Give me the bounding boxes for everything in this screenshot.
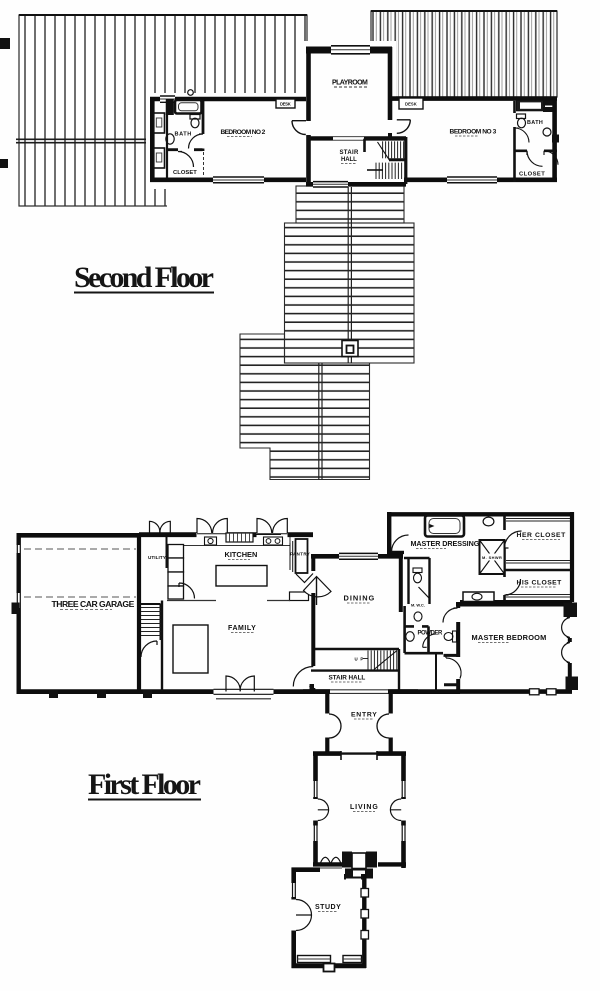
- svg-text:DESK: DESK: [405, 102, 417, 107]
- svg-text:STAIR: STAIR: [340, 150, 359, 156]
- svg-text:BATH: BATH: [527, 120, 543, 126]
- svg-text:ENTRY: ENTRY: [351, 712, 377, 719]
- svg-text:UTILITY: UTILITY: [148, 555, 166, 560]
- svg-text:M. W.C.: M. W.C.: [411, 603, 425, 608]
- svg-text:BEDROOM NO 3: BEDROOM NO 3: [450, 129, 497, 136]
- svg-text:DESK: DESK: [280, 101, 291, 106]
- svg-text:CLOSET: CLOSET: [519, 172, 545, 178]
- svg-text:THREE CAR GARAGE: THREE CAR GARAGE: [52, 599, 135, 609]
- svg-text:STAIR HALL: STAIR HALL: [329, 675, 366, 682]
- svg-text:HIS CLOSET: HIS CLOSET: [517, 580, 563, 587]
- svg-text:PLAYROOM: PLAYROOM: [332, 80, 368, 87]
- svg-text:LIVING: LIVING: [350, 804, 378, 811]
- svg-text:FAMILY: FAMILY: [228, 625, 256, 632]
- svg-text:Second Floor: Second Floor: [74, 261, 214, 294]
- svg-text:MASTER BEDROOM: MASTER BEDROOM: [472, 633, 547, 642]
- svg-text:First Floor: First Floor: [88, 768, 201, 801]
- svg-text:STUDY: STUDY: [315, 904, 341, 911]
- svg-text:BATH: BATH: [175, 132, 192, 138]
- svg-text:DINING: DINING: [344, 594, 375, 603]
- svg-text:M. SHWR: M. SHWR: [482, 555, 502, 560]
- svg-text:HALL: HALL: [341, 157, 357, 163]
- svg-text:PANTRY: PANTRY: [290, 552, 310, 557]
- svg-text:HER CLOSET: HER CLOSET: [517, 532, 567, 539]
- svg-text:BEDROOM NO 2: BEDROOM NO 2: [221, 129, 266, 136]
- svg-text:CLOSET: CLOSET: [173, 170, 197, 176]
- svg-text:KITCHEN: KITCHEN: [225, 550, 258, 559]
- svg-text:MASTER DRESSING: MASTER DRESSING: [411, 539, 480, 548]
